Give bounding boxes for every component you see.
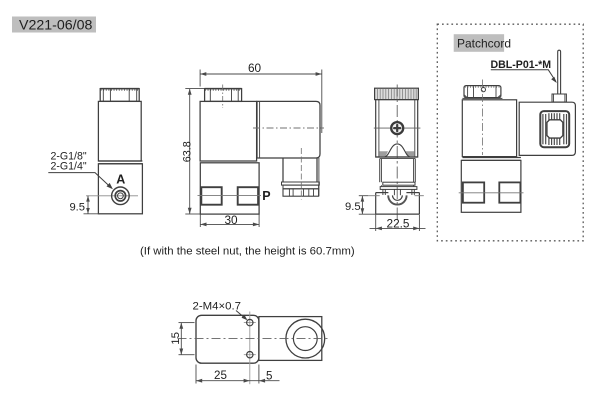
- svg-text:9.5: 9.5: [69, 201, 85, 213]
- svg-text:A: A: [116, 173, 125, 187]
- svg-text:2-M4×0.7: 2-M4×0.7: [193, 300, 241, 312]
- svg-text:2-G1/4": 2-G1/4": [51, 161, 87, 173]
- svg-text:63.8: 63.8: [181, 141, 193, 162]
- svg-text:22.5: 22.5: [387, 216, 410, 230]
- svg-text:25: 25: [214, 369, 227, 382]
- svg-text:Patchcord: Patchcord: [457, 37, 511, 51]
- svg-text:60: 60: [248, 61, 262, 75]
- svg-text:DBL-P01-*M: DBL-P01-*M: [491, 59, 552, 71]
- svg-text:P: P: [262, 189, 270, 203]
- svg-text:5: 5: [266, 369, 272, 382]
- svg-text:9.5: 9.5: [345, 201, 361, 213]
- svg-text:V221-06/08: V221-06/08: [19, 17, 92, 33]
- svg-text:30: 30: [224, 213, 238, 227]
- svg-text:(If with the steel nut, the he: (If with the steel nut, the height is 60…: [140, 245, 355, 257]
- svg-text:15: 15: [170, 332, 182, 345]
